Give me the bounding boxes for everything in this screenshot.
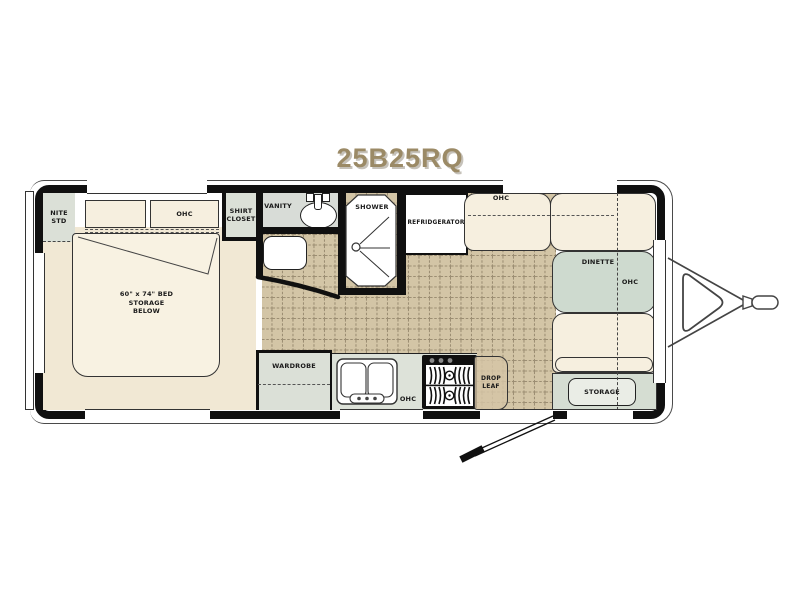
window	[340, 409, 423, 423]
shirt-closet: SHIRT CLOSET	[222, 193, 256, 241]
rear-bumper	[25, 191, 34, 410]
kitchen-sink-icon	[336, 358, 398, 406]
bathroom-wall	[256, 193, 263, 278]
bed-fold-lines	[72, 233, 220, 293]
wardrobe	[256, 350, 332, 410]
window	[503, 180, 617, 194]
storage-compartment: STORAGE	[568, 378, 636, 406]
window	[87, 180, 207, 194]
wardrobe-label: WARDROBE	[258, 362, 330, 371]
floorplan-canvas: 25B25RQ NITE STD OHC 60" x 74" BED STORA…	[0, 0, 800, 600]
entry-door-swing	[450, 405, 565, 467]
bed-label: 60" x 74" BED STORAGE BELOW	[89, 288, 204, 318]
toilet-icon	[263, 236, 307, 270]
front-ohc-label: OHC	[486, 194, 516, 203]
wardrobe-seam	[258, 384, 330, 385]
faucet-icon	[306, 193, 314, 202]
nite-stand: NITE STD	[43, 193, 75, 242]
faucet-spout-icon	[314, 194, 322, 210]
bathroom-door-swing	[254, 272, 344, 302]
slide-seam-line	[617, 193, 618, 410]
overhead-cabinet-bed: OHC	[150, 200, 219, 228]
front-bench-seam	[468, 215, 614, 216]
refrigerator: REFRIDGERATOR	[404, 193, 468, 255]
front-bench-cushion	[550, 193, 656, 251]
overhead-cabinet-left	[85, 200, 146, 228]
drop-leaf-table: DROP LEAF	[474, 356, 508, 410]
floorplan-title: 25B25RQ	[0, 143, 800, 174]
shower-label: SHOWER	[346, 202, 398, 212]
kitchen-ohc-label: OHC	[396, 395, 420, 403]
window	[85, 409, 210, 423]
dinette-label: DINETTE	[564, 257, 632, 267]
trailer-hitch	[655, 230, 790, 380]
bathroom-wall	[256, 227, 345, 234]
vanity-label: VANITY	[258, 201, 298, 211]
faucet-icon	[322, 193, 330, 202]
stove-icon	[422, 355, 477, 409]
rear-window	[35, 253, 45, 373]
window	[567, 409, 633, 423]
dinette-bench-front	[555, 357, 653, 372]
